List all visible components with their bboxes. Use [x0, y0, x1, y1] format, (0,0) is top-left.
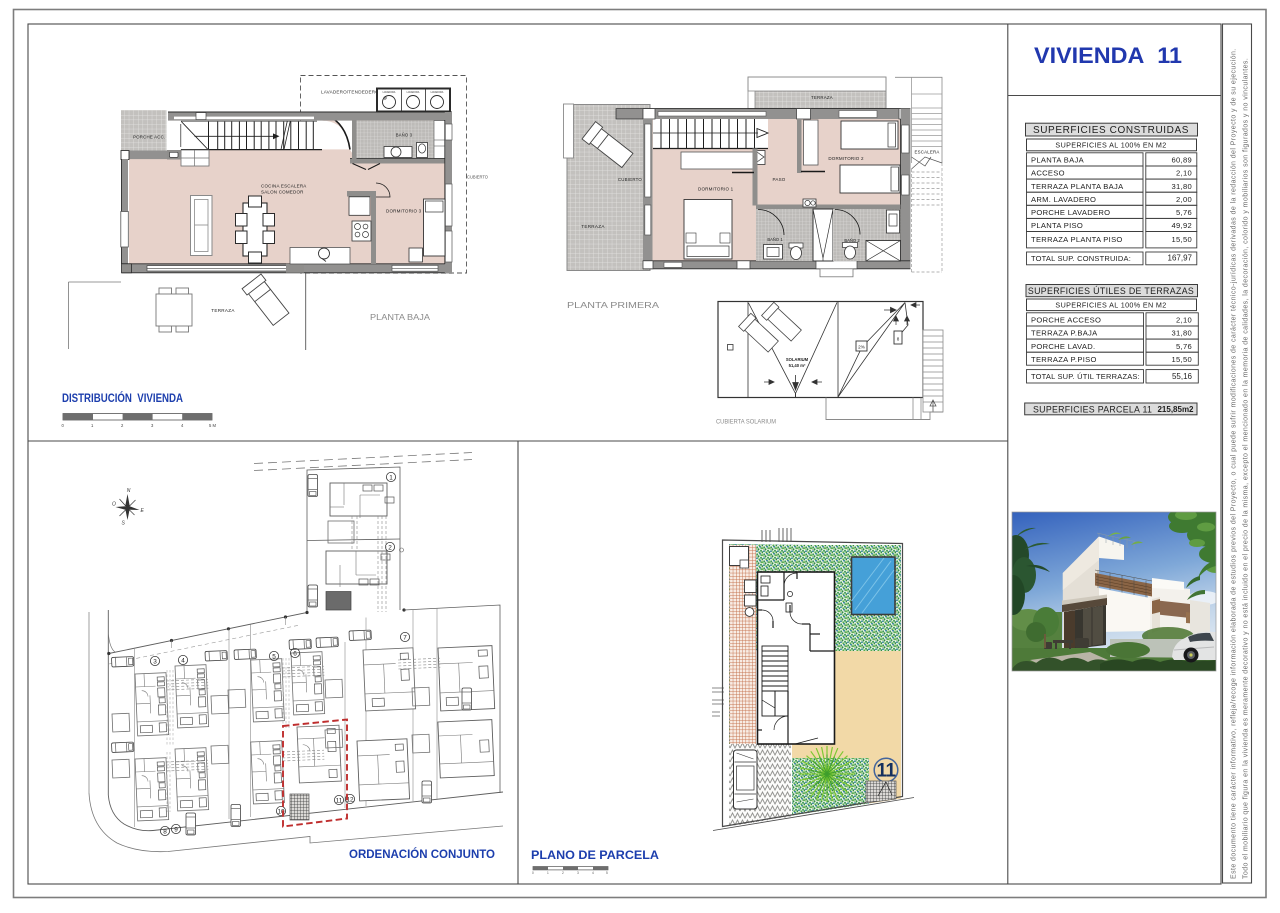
svg-text:PLANTA PRIMERA: PLANTA PRIMERA — [567, 300, 659, 310]
svg-text:3: 3 — [153, 658, 157, 665]
svg-text:SUPERFICIES AL 100% EN M2: SUPERFICIES AL 100% EN M2 — [1055, 141, 1166, 150]
svg-text:DISTRIBUCIÓN VIVIENDA: DISTRIBUCIÓN VIVIENDA — [62, 390, 183, 405]
svg-text:6: 6 — [293, 650, 297, 657]
svg-text:51,40 m²: 51,40 m² — [789, 363, 806, 368]
svg-text:BAÑO 3: BAÑO 3 — [396, 133, 413, 138]
svg-text:55,16: 55,16 — [1172, 372, 1193, 381]
svg-text:PLANTA BAJA: PLANTA BAJA — [1031, 156, 1085, 165]
svg-text:ORDENACIÓN CONJUNTO: ORDENACIÓN CONJUNTO — [349, 846, 495, 861]
svg-text:TERRAZA P.PISO: TERRAZA P.PISO — [1031, 355, 1097, 364]
svg-text:TOTAL SUP. CONSTRUIDA:: TOTAL SUP. CONSTRUIDA: — [1031, 254, 1131, 263]
svg-text:LAVADERO/TENDEDERO: LAVADERO/TENDEDERO — [321, 90, 379, 95]
svg-text:2: 2 — [562, 871, 564, 875]
svg-text:Todo el mobiliario que figura: Todo el mobiliario que figura en la vivi… — [1243, 58, 1250, 879]
svg-text:8: 8 — [163, 828, 167, 835]
svg-text:9: 9 — [174, 826, 178, 833]
svg-text:PASO: PASO — [773, 177, 786, 182]
svg-text:SUPERFICIES CONSTRUIDAS: SUPERFICIES CONSTRUIDAS — [1033, 125, 1189, 136]
svg-text:1: 1 — [547, 871, 549, 875]
svg-text:0: 0 — [532, 871, 534, 875]
svg-text:LAVADORA: LAVADORA — [431, 91, 444, 94]
svg-text:5,76: 5,76 — [1176, 208, 1192, 217]
svg-text:5 M: 5 M — [209, 423, 216, 428]
svg-text:TERRAZA PLANTA PISO: TERRAZA PLANTA PISO — [1031, 235, 1123, 244]
svg-text:1: 1 — [389, 474, 393, 481]
svg-text:TERRAZA: TERRAZA — [211, 308, 235, 313]
svg-text:TERRAZA: TERRAZA — [811, 95, 833, 100]
svg-text:DORMITORIO 2: DORMITORIO 2 — [828, 156, 864, 161]
svg-text:PLANTA PISO: PLANTA PISO — [1031, 221, 1083, 230]
svg-text:49,92: 49,92 — [1171, 221, 1192, 230]
svg-text:8: 8 — [897, 337, 900, 342]
svg-text:4: 4 — [592, 871, 594, 875]
svg-text:SUPERFICIES ÚTILES DE TERRAZAS: SUPERFICIES ÚTILES DE TERRAZAS — [1028, 286, 1194, 296]
svg-text:11: 11 — [876, 761, 896, 782]
svg-text:5,76: 5,76 — [1176, 342, 1192, 351]
svg-text:CUBIERTO: CUBIERTO — [618, 177, 643, 182]
svg-text:TERRAZA P.BAJA: TERRAZA P.BAJA — [1031, 329, 1098, 338]
svg-text:7: 7 — [403, 634, 407, 641]
svg-text:PLANO DE PARCELA: PLANO DE PARCELA — [531, 848, 659, 862]
svg-text:167,97: 167,97 — [1168, 253, 1193, 262]
svg-text:PORCHE LAVADERO: PORCHE LAVADERO — [1031, 208, 1110, 217]
svg-text:TERRAZA PLANTA BAJA: TERRAZA PLANTA BAJA — [1031, 182, 1124, 191]
svg-text:PORCHE ACC.: PORCHE ACC. — [133, 135, 165, 140]
svg-text:215,85m2: 215,85m2 — [1157, 405, 1194, 414]
svg-text:ACCESO: ACCESO — [1031, 169, 1065, 178]
svg-text:VIVIENDA 11: VIVIENDA 11 — [1034, 43, 1182, 68]
svg-text:4: 4 — [181, 657, 185, 664]
svg-text:LAVADORA: LAVADORA — [407, 91, 420, 94]
svg-text:SALON COMEDOR: SALON COMEDOR — [261, 190, 304, 195]
svg-text:5: 5 — [272, 653, 276, 660]
svg-text:COCINA ESCALERA: COCINA ESCALERA — [261, 184, 307, 189]
svg-text:SUPERFICIES PARCELA 11: SUPERFICIES PARCELA 11 — [1033, 404, 1152, 414]
svg-text:31,80: 31,80 — [1171, 329, 1192, 338]
svg-text:PLANTA BAJA: PLANTA BAJA — [370, 312, 430, 322]
svg-text:2,10: 2,10 — [1176, 169, 1192, 178]
svg-text:11: 11 — [336, 797, 343, 804]
svg-text:DORMITORIO 1: DORMITORIO 1 — [698, 187, 734, 192]
svg-text:O: O — [112, 502, 116, 508]
svg-text:ESCALERA: ESCALERA — [914, 150, 939, 155]
svg-text:2,10: 2,10 — [1176, 316, 1192, 325]
svg-text:15,50: 15,50 — [1171, 355, 1192, 364]
svg-text:PORCHE ACCESO: PORCHE ACCESO — [1031, 316, 1101, 325]
svg-text:Este documento tiene carácter: Este documento tiene carácter informativ… — [1231, 48, 1238, 879]
svg-text:CUBIERTA SOLARIUM: CUBIERTA SOLARIUM — [716, 420, 776, 426]
svg-text:31,80: 31,80 — [1171, 182, 1192, 191]
svg-text:CUBIERTO: CUBIERTO — [467, 175, 488, 181]
svg-text:LAVADORA: LAVADORA — [383, 91, 396, 94]
svg-text:BAÑO 1: BAÑO 1 — [767, 237, 783, 242]
svg-text:TERRAZA: TERRAZA — [581, 224, 605, 229]
svg-text:PORCHE LAVAD.: PORCHE LAVAD. — [1031, 342, 1095, 351]
svg-text:2: 2 — [388, 544, 392, 551]
svg-text:ARM. LAVADERO: ARM. LAVADERO — [1031, 195, 1096, 204]
svg-text:DORMITORIO 3: DORMITORIO 3 — [386, 209, 422, 214]
svg-text:TOTAL SUP. ÚTIL TERRAZAS:: TOTAL SUP. ÚTIL TERRAZAS: — [1031, 372, 1140, 381]
svg-text:N: N — [127, 488, 131, 494]
svg-text:SUPERFICIES AL 100% EN M2: SUPERFICIES AL 100% EN M2 — [1055, 301, 1166, 310]
svg-text:5: 5 — [606, 871, 608, 875]
svg-text:15,50: 15,50 — [1171, 235, 1192, 244]
svg-text:SOLARIUM: SOLARIUM — [786, 357, 809, 362]
svg-text:3: 3 — [577, 871, 579, 875]
svg-text:60,89: 60,89 — [1171, 156, 1192, 165]
svg-text:2,00: 2,00 — [1176, 195, 1192, 204]
svg-text:2%: 2% — [858, 345, 865, 350]
